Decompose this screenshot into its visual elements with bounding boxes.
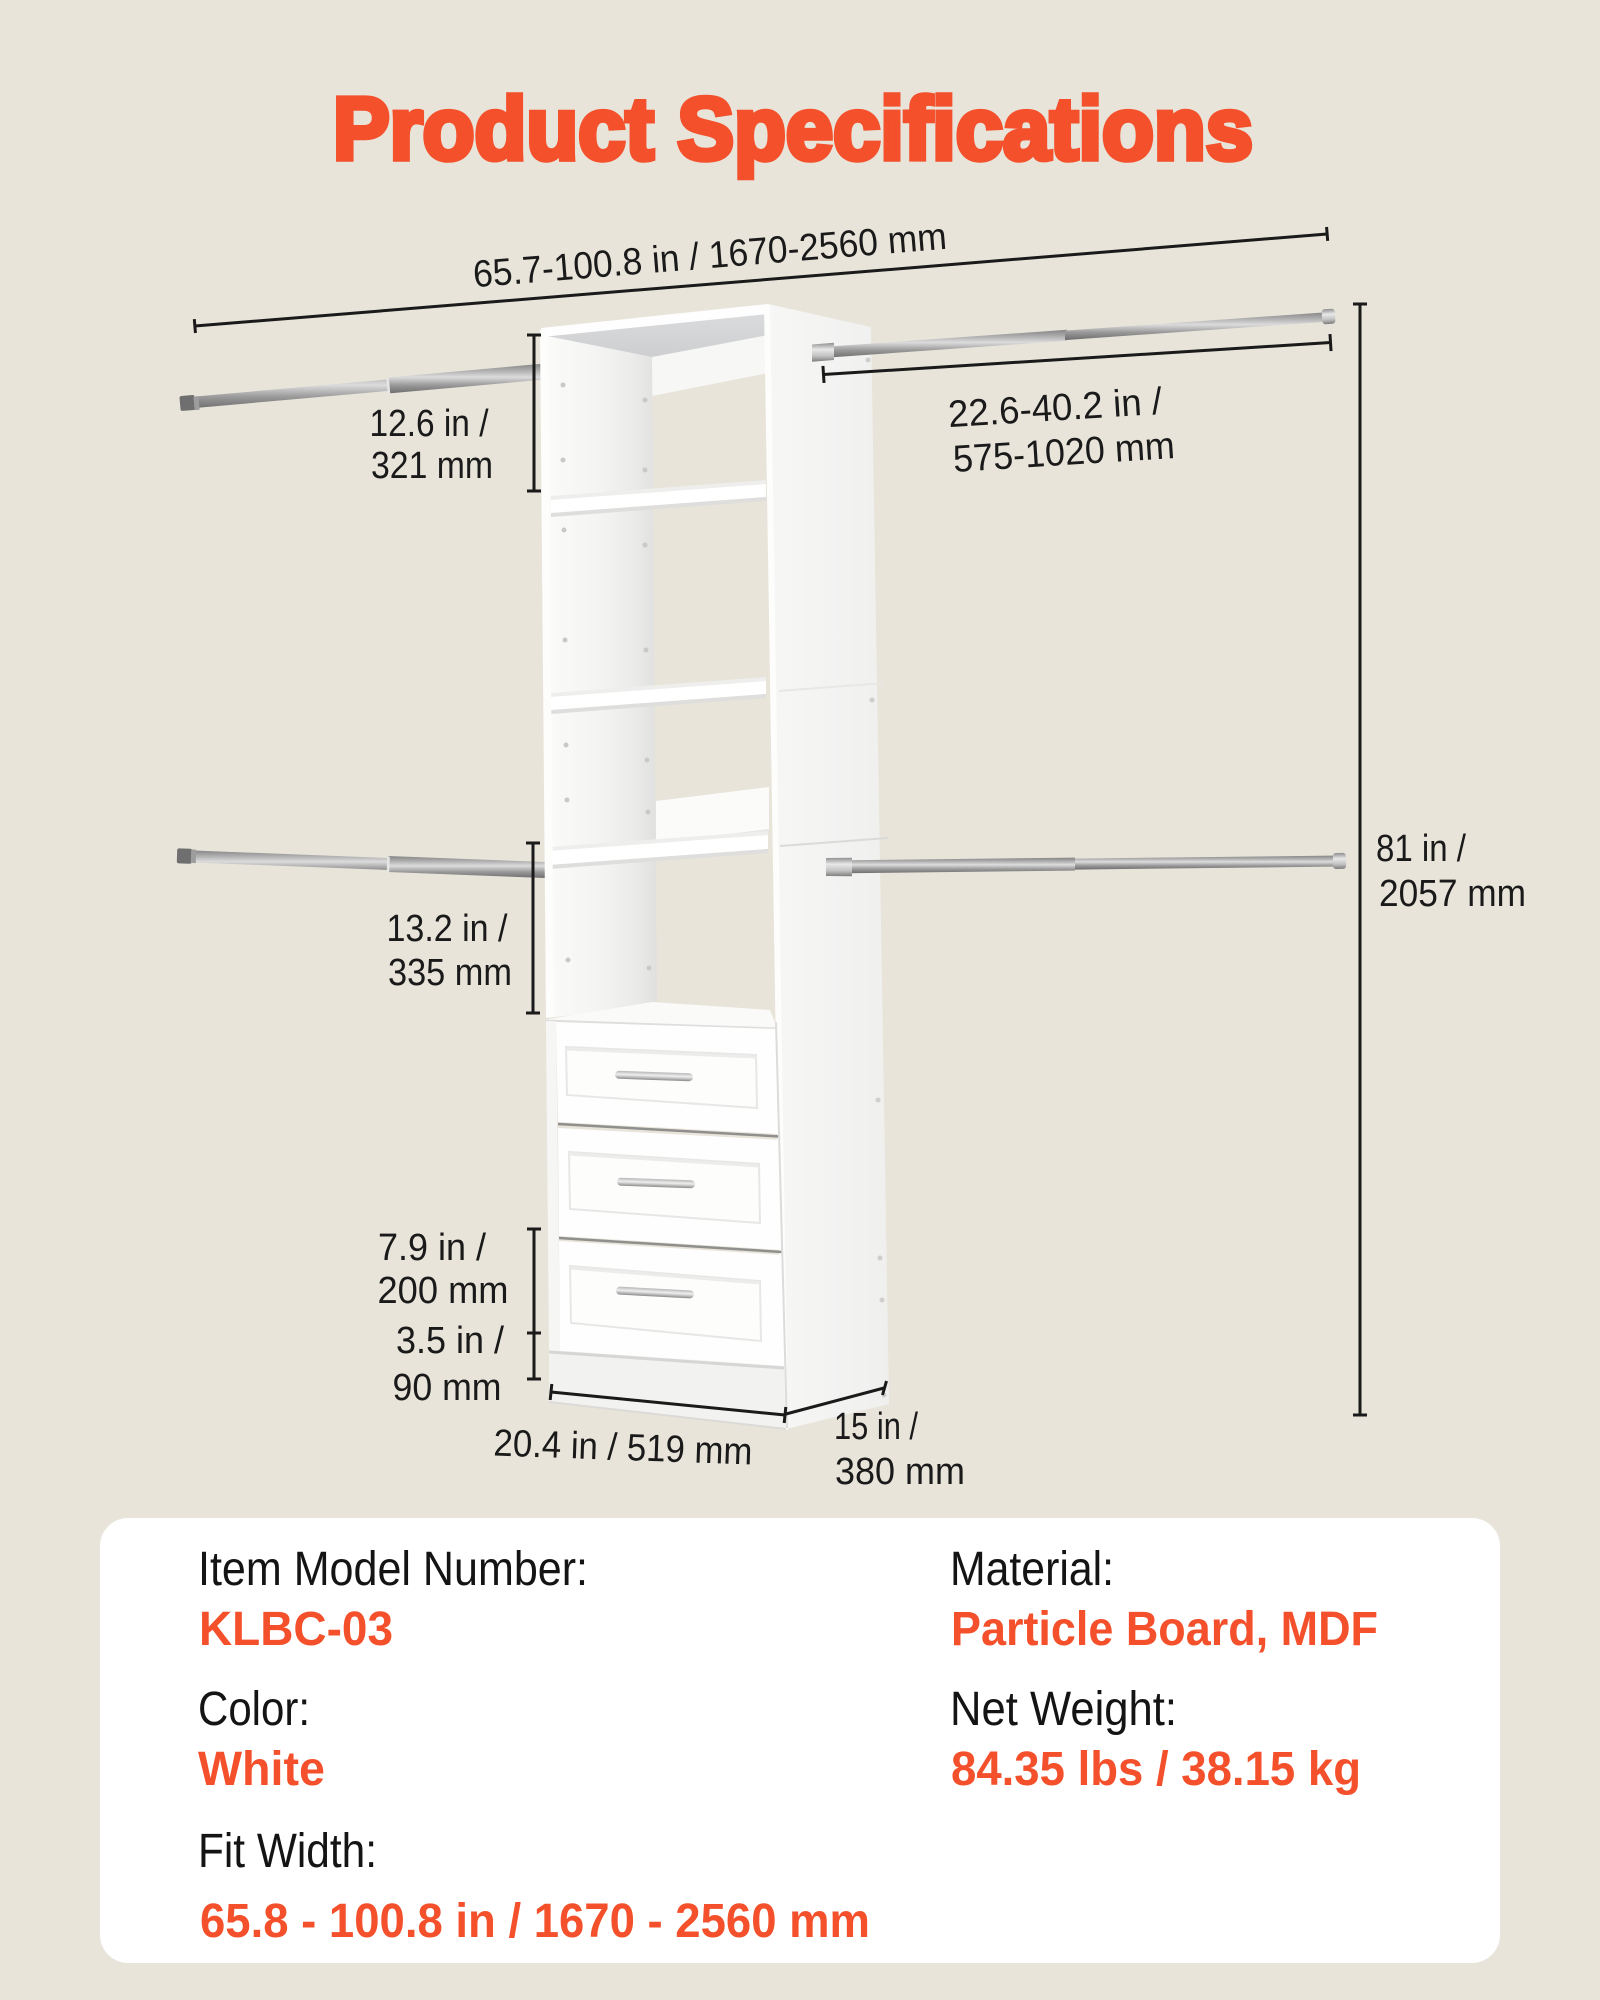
- svg-text:Net Weight:: Net Weight:: [950, 1683, 1177, 1736]
- svg-text:2057 mm: 2057 mm: [1379, 873, 1526, 915]
- svg-text:335 mm: 335 mm: [388, 952, 512, 994]
- svg-text:Particle Board, MDF: Particle Board, MDF: [951, 1603, 1378, 1656]
- svg-text:3.5 in /: 3.5 in /: [396, 1320, 504, 1362]
- svg-text:200 mm: 200 mm: [378, 1270, 509, 1312]
- svg-text:84.35 lbs / 38.15 kg: 84.35 lbs / 38.15 kg: [951, 1743, 1361, 1796]
- svg-text:15 in /: 15 in /: [834, 1406, 918, 1448]
- svg-text:321 mm: 321 mm: [371, 445, 493, 487]
- svg-text:White: White: [198, 1743, 325, 1796]
- svg-text:Material:: Material:: [950, 1543, 1114, 1596]
- svg-text:380 mm: 380 mm: [835, 1451, 965, 1493]
- svg-text:13.2 in /: 13.2 in /: [387, 908, 508, 950]
- svg-text:Item Model Number:: Item Model Number:: [198, 1543, 588, 1596]
- svg-text:Fit Width:: Fit Width:: [198, 1825, 377, 1878]
- svg-text:Product Specifications: Product Specifications: [333, 79, 1253, 178]
- svg-text:KLBC-03: KLBC-03: [199, 1603, 393, 1656]
- svg-text:12.6 in /: 12.6 in /: [370, 403, 489, 445]
- svg-text:90 mm: 90 mm: [393, 1367, 502, 1409]
- svg-text:81 in /: 81 in /: [1376, 828, 1466, 870]
- svg-text:Color:: Color:: [198, 1683, 310, 1736]
- svg-text:65.8 - 100.8 in / 1670 - 2560: 65.8 - 100.8 in / 1670 - 2560 mm: [200, 1895, 870, 1948]
- svg-text:7.9 in /: 7.9 in /: [378, 1227, 486, 1269]
